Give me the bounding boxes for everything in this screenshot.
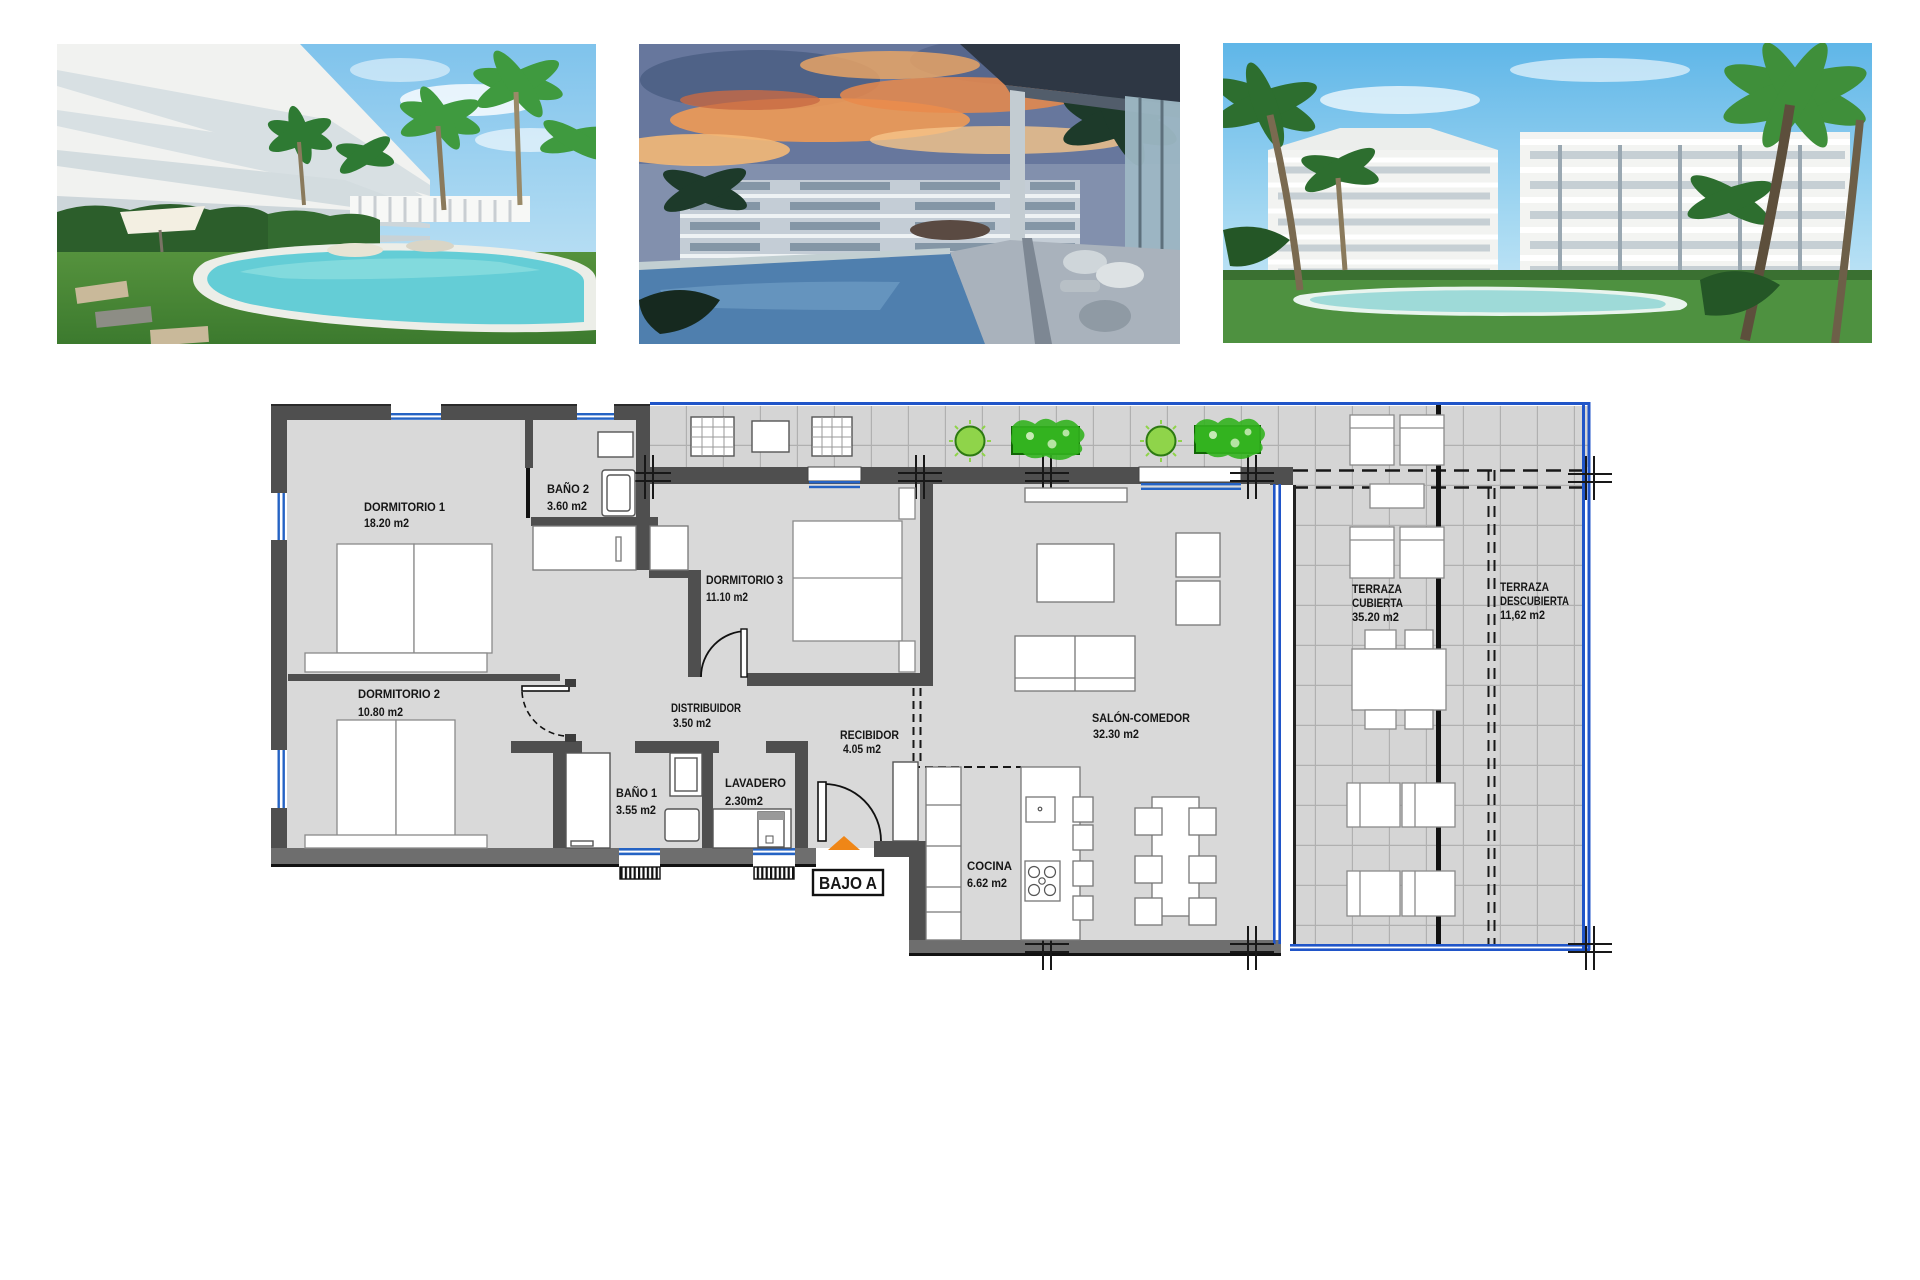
svg-text:LAVADERO: LAVADERO <box>725 778 786 790</box>
svg-text:10.80 m2: 10.80 m2 <box>358 707 403 719</box>
svg-text:SALÓN-COMEDOR: SALÓN-COMEDOR <box>1092 712 1191 725</box>
svg-text:32.30 m2: 32.30 m2 <box>1093 729 1139 741</box>
svg-text:TERRAZA: TERRAZA <box>1352 584 1402 596</box>
svg-text:TERRAZA: TERRAZA <box>1500 582 1549 594</box>
svg-text:3.50 m2: 3.50 m2 <box>673 718 711 730</box>
svg-text:BAJO A: BAJO A <box>819 873 877 893</box>
svg-text:DORMITORIO 3: DORMITORIO 3 <box>706 575 783 587</box>
svg-text:35.20 m2: 35.20 m2 <box>1352 612 1399 624</box>
svg-text:DESCUBIERTA: DESCUBIERTA <box>1500 596 1569 608</box>
svg-text:BAÑO 2: BAÑO 2 <box>547 483 589 496</box>
svg-text:CUBIERTA: CUBIERTA <box>1352 598 1403 610</box>
svg-text:COCINA: COCINA <box>967 861 1012 873</box>
svg-text:11.10 m2: 11.10 m2 <box>706 592 748 604</box>
svg-text:RECIBIDOR: RECIBIDOR <box>840 730 900 742</box>
svg-text:DORMITORIO 1: DORMITORIO 1 <box>364 502 446 514</box>
svg-text:DORMITORIO 2: DORMITORIO 2 <box>358 689 440 701</box>
svg-text:DISTRIBUIDOR: DISTRIBUIDOR <box>671 703 742 715</box>
svg-text:6.62 m2: 6.62 m2 <box>967 878 1007 890</box>
svg-text:18.20 m2: 18.20 m2 <box>364 518 409 530</box>
svg-text:BAÑO 1: BAÑO 1 <box>616 787 658 800</box>
svg-text:2.30m2: 2.30m2 <box>725 796 763 808</box>
svg-text:3.55 m2: 3.55 m2 <box>616 805 656 817</box>
svg-text:3.60 m2: 3.60 m2 <box>547 501 587 513</box>
svg-text:4.05 m2: 4.05 m2 <box>843 744 881 756</box>
svg-text:11,62 m2: 11,62 m2 <box>1500 610 1545 622</box>
